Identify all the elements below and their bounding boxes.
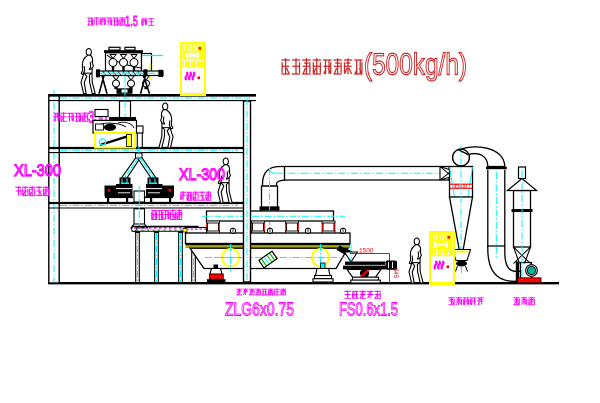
svg-text:1.5: 1.5 [125,13,138,30]
svg-text:Φ500: Φ500 [454,184,468,190]
svg-text:1500: 1500 [359,248,374,255]
svg-text:(500kg/h): (500kg/h) [364,47,467,82]
svg-text:ZLG6x0.75: ZLG6x0.75 [225,300,294,320]
svg-text:XL-300: XL-300 [14,161,61,180]
svg-text:FS0.6x1.5: FS0.6x1.5 [339,300,398,320]
svg-text:XL-300: XL-300 [179,165,225,184]
